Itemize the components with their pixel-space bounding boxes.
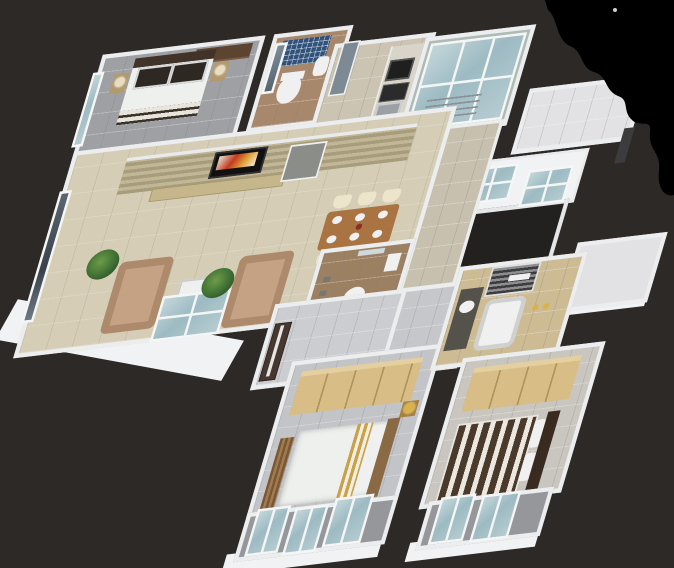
gold-fitting-icon <box>531 304 539 311</box>
floor-plan-render-canvas <box>0 0 674 568</box>
table-flowers-icon <box>355 223 363 230</box>
master-wardrobe <box>462 355 582 412</box>
guest-west-window-icon <box>71 72 105 148</box>
living-west-window-icon <box>21 190 72 323</box>
bathroom2-mirror <box>357 248 385 256</box>
dining-chair <box>331 194 353 209</box>
dining-chair <box>356 191 378 206</box>
toilet-tank <box>280 71 305 82</box>
gold-fitting-icon <box>542 303 550 310</box>
master-bath-tub <box>472 295 528 351</box>
bathroom2-shelf <box>383 253 401 272</box>
entry-door-panel <box>258 322 292 382</box>
shower-fitting-icon <box>318 290 327 296</box>
entry-door-stripe <box>266 325 285 376</box>
shower-fitting-icon <box>323 276 332 282</box>
white-speck <box>613 8 617 12</box>
balcony-glass-panel-icon <box>469 490 522 542</box>
dining-chair <box>381 188 403 203</box>
